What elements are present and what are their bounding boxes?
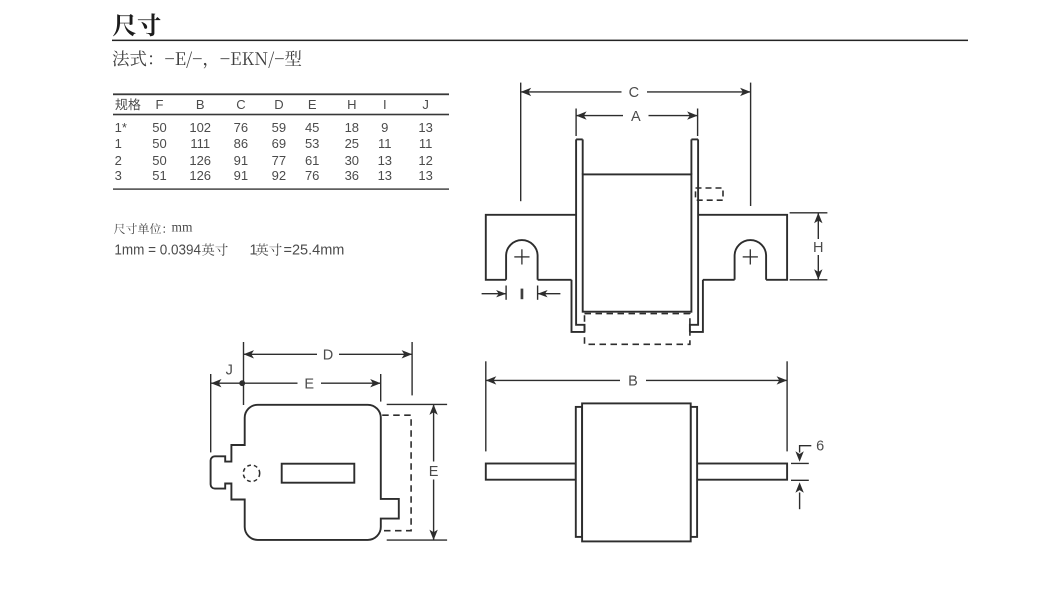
svg-text:9: 9 <box>381 120 388 135</box>
svg-text:51: 51 <box>152 168 166 183</box>
svg-text:12: 12 <box>418 153 432 168</box>
svg-text:1: 1 <box>250 243 258 259</box>
svg-text:76: 76 <box>305 168 319 183</box>
svg-text:61: 61 <box>305 153 319 168</box>
svg-text:J: J <box>226 362 233 378</box>
svg-text:86: 86 <box>234 136 248 151</box>
svg-text:102: 102 <box>189 120 211 135</box>
svg-text:H: H <box>347 97 356 112</box>
svg-text:13: 13 <box>378 153 392 168</box>
svg-text:13: 13 <box>418 120 432 135</box>
svg-text:91: 91 <box>234 168 248 183</box>
svg-text:2: 2 <box>115 153 122 168</box>
svg-text:59: 59 <box>272 120 286 135</box>
svg-text:3: 3 <box>115 168 122 183</box>
svg-text:126: 126 <box>189 153 211 168</box>
svg-text:13: 13 <box>378 168 392 183</box>
svg-text:76: 76 <box>234 120 248 135</box>
svg-text:6: 6 <box>816 438 824 454</box>
svg-text:1*: 1* <box>115 120 127 135</box>
svg-text:69: 69 <box>272 136 286 151</box>
svg-text:E: E <box>308 97 317 112</box>
svg-text:30: 30 <box>345 153 359 168</box>
svg-text:92: 92 <box>272 168 286 183</box>
svg-text:I: I <box>383 97 387 112</box>
svg-text:E: E <box>429 464 439 480</box>
svg-text:J: J <box>422 97 429 112</box>
svg-text:mm: mm <box>172 219 194 234</box>
svg-text:E: E <box>304 377 314 393</box>
svg-text:1mm = 0.0394: 1mm = 0.0394 <box>114 243 201 259</box>
svg-text:53: 53 <box>305 136 319 151</box>
svg-text:91: 91 <box>234 153 248 168</box>
svg-text:F: F <box>156 97 164 112</box>
svg-text:1: 1 <box>115 136 122 151</box>
svg-text:D: D <box>323 348 333 364</box>
svg-text:36: 36 <box>345 168 359 183</box>
svg-text:50: 50 <box>152 120 166 135</box>
svg-text:B: B <box>196 97 205 112</box>
svg-text:45: 45 <box>305 120 319 135</box>
svg-text:50: 50 <box>152 136 166 151</box>
svg-text:50: 50 <box>152 153 166 168</box>
svg-text:A: A <box>631 109 641 125</box>
svg-text:13: 13 <box>418 168 432 183</box>
svg-text:25: 25 <box>345 136 359 151</box>
svg-text:C: C <box>629 85 639 101</box>
svg-text:D: D <box>274 97 283 112</box>
svg-text:H: H <box>813 240 823 256</box>
svg-text:11: 11 <box>378 136 392 151</box>
svg-text:=25.4mm: =25.4mm <box>284 243 345 259</box>
svg-text:111: 111 <box>190 136 210 151</box>
svg-text:126: 126 <box>189 168 211 183</box>
svg-text:11: 11 <box>419 136 433 151</box>
svg-text:18: 18 <box>345 120 359 135</box>
svg-text:C: C <box>236 97 245 112</box>
svg-text:B: B <box>628 374 638 390</box>
svg-text:77: 77 <box>272 153 286 168</box>
